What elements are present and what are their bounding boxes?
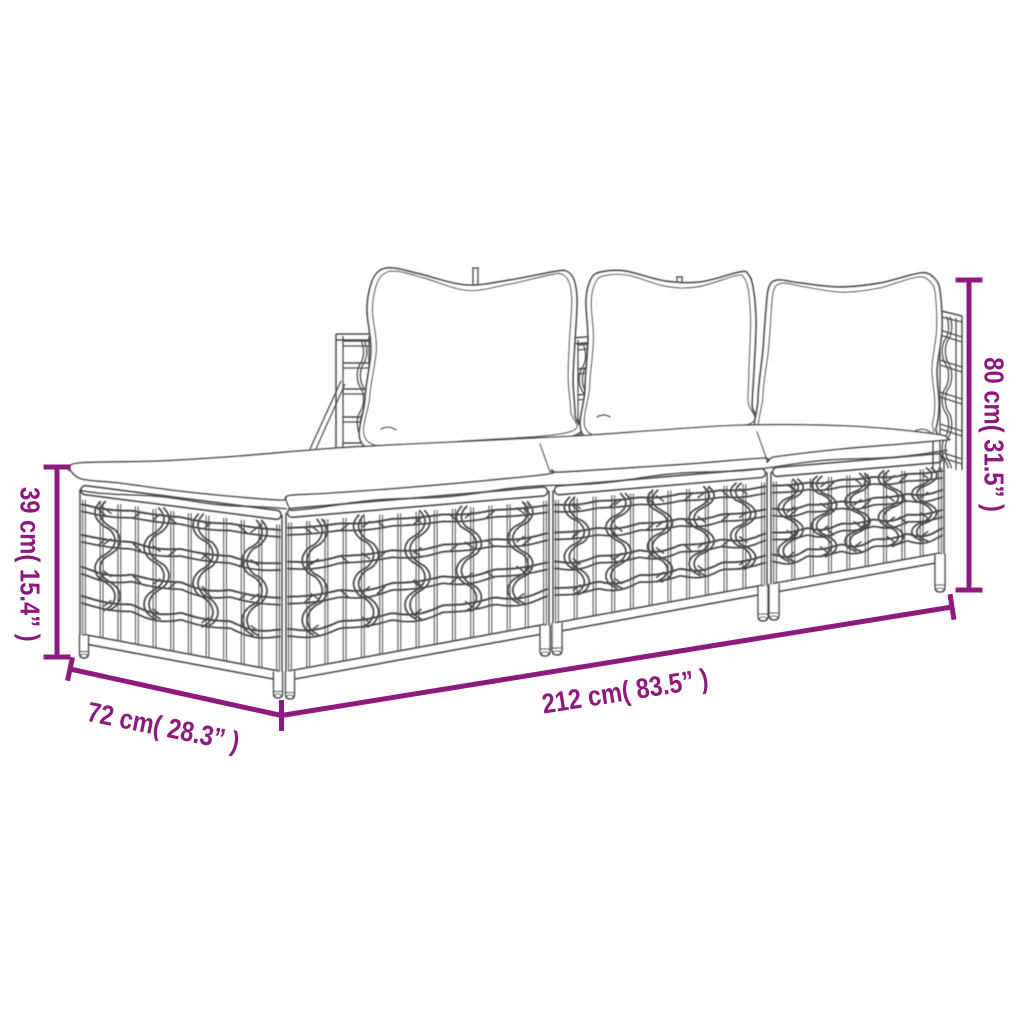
svg-text:72 cm( 28.3” ): 72 cm( 28.3” )	[84, 695, 242, 758]
svg-text:39 cm( 15.4” ): 39 cm( 15.4” )	[14, 487, 46, 642]
svg-text:80 cm( 31.5” ): 80 cm( 31.5” )	[978, 357, 1010, 512]
